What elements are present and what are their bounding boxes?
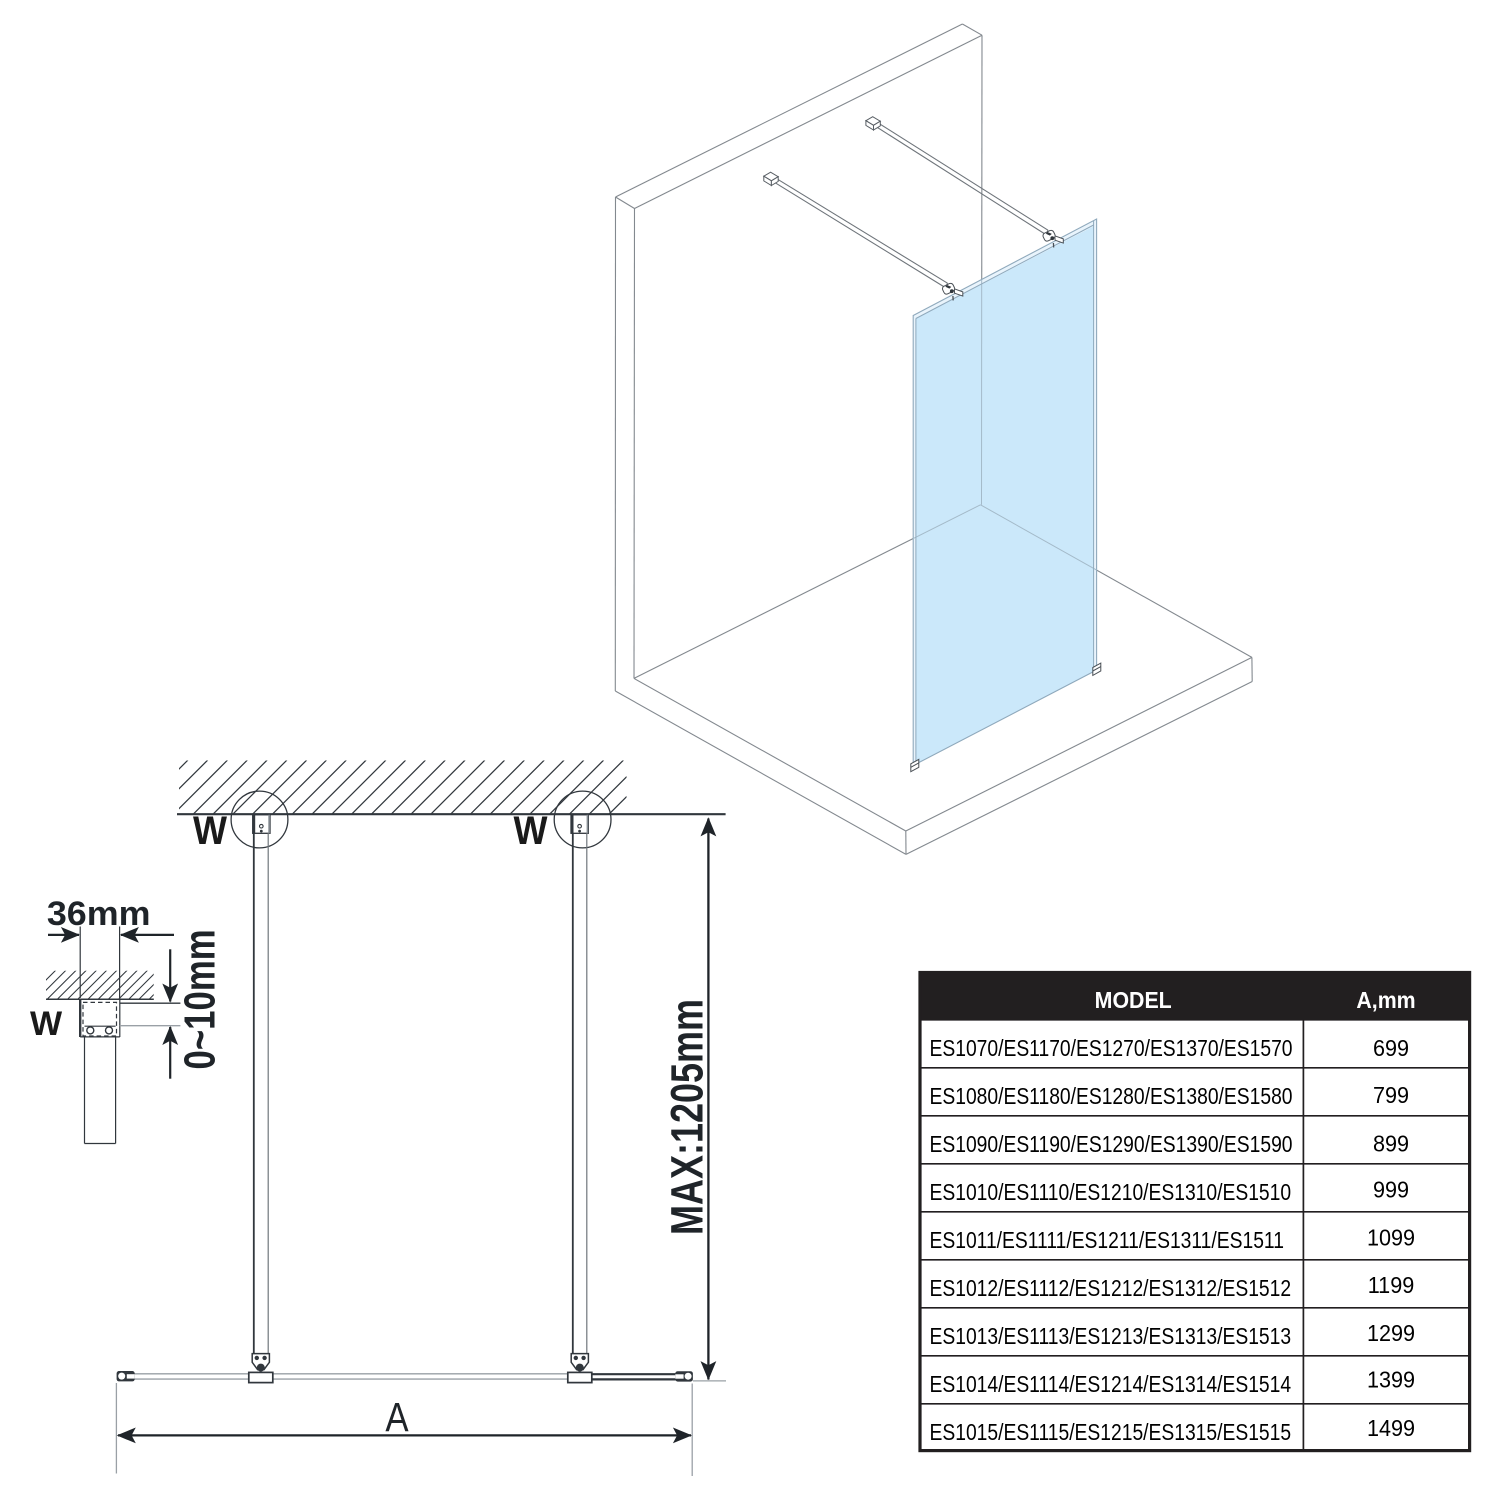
svg-text:799: 799: [1373, 1082, 1409, 1108]
svg-text:ES1070/ES1170/ES1270/ES1370/ES: ES1070/ES1170/ES1270/ES1370/ES1570: [930, 1035, 1293, 1061]
svg-text:ES1015/ES1115/ES1215/ES1315/ES: ES1015/ES1115/ES1215/ES1315/ES1515: [930, 1419, 1292, 1445]
svg-text:1199: 1199: [1368, 1272, 1414, 1298]
svg-text:MAX:1205mm: MAX:1205mm: [662, 999, 713, 1235]
svg-text:MODEL: MODEL: [1095, 987, 1172, 1013]
svg-text:ES1090/ES1190/ES1290/ES1390/ES: ES1090/ES1190/ES1290/ES1390/ES1590: [930, 1131, 1293, 1157]
svg-text:1499: 1499: [1367, 1415, 1415, 1441]
svg-text:1399: 1399: [1367, 1367, 1415, 1393]
svg-text:999: 999: [1373, 1177, 1409, 1203]
svg-text:W: W: [30, 1005, 63, 1043]
svg-text:A: A: [385, 1395, 409, 1440]
svg-text:ES1011/ES1111/ES1211/ES1311/ES: ES1011/ES1111/ES1211/ES1311/ES1511: [930, 1227, 1284, 1253]
svg-text:899: 899: [1373, 1131, 1409, 1157]
svg-text:1299: 1299: [1367, 1320, 1415, 1346]
svg-text:36mm: 36mm: [47, 895, 151, 933]
svg-text:ES1080/ES1180/ES1280/ES1380/ES: ES1080/ES1180/ES1280/ES1380/ES1580: [930, 1083, 1293, 1109]
svg-text:0~10mm: 0~10mm: [175, 929, 224, 1069]
svg-text:W: W: [514, 809, 548, 853]
svg-text:ES1010/ES1110/ES1210/ES1310/ES: ES1010/ES1110/ES1210/ES1310/ES1510: [930, 1179, 1292, 1205]
svg-text:A,mm: A,mm: [1356, 987, 1415, 1013]
svg-text:1099: 1099: [1367, 1225, 1415, 1251]
svg-text:ES1014/ES1114/ES1214/ES1314/ES: ES1014/ES1114/ES1214/ES1314/ES1514: [930, 1371, 1292, 1397]
svg-text:699: 699: [1373, 1035, 1409, 1061]
svg-text:W: W: [193, 809, 227, 853]
svg-text:ES1012/ES1112/ES1212/ES1312/ES: ES1012/ES1112/ES1212/ES1312/ES1512: [930, 1275, 1292, 1301]
svg-text:ES1013/ES1113/ES1213/ES1313/ES: ES1013/ES1113/ES1213/ES1313/ES1513: [930, 1323, 1292, 1349]
